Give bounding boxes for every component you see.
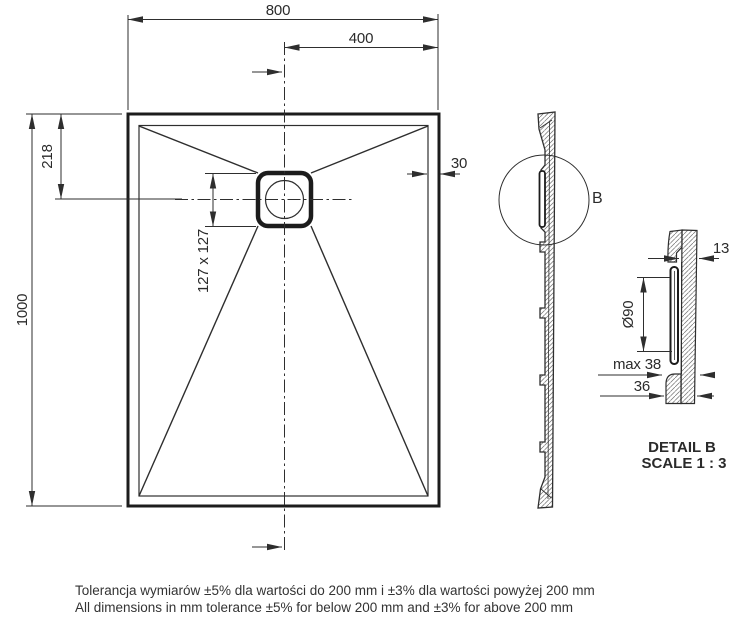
side-view (499, 112, 589, 508)
tolerance-notes: Tolerancja wymiarów ±5% dla wartości do … (75, 583, 595, 615)
dim-label-218: 218 (39, 144, 56, 168)
detail-top-rim (668, 230, 682, 262)
top-view-dimensions (26, 14, 460, 547)
slope-lines (139, 126, 428, 496)
detail-scale: SCALE 1 : 3 (641, 455, 726, 472)
tolerance-note-en: All dimensions in mm tolerance ±5% for b… (75, 600, 573, 615)
centerlines (175, 42, 352, 552)
detail-title: DETAIL B (648, 439, 716, 456)
top-view (128, 42, 439, 552)
detail-right-wall (681, 230, 697, 404)
detail-b-letter: B (592, 190, 603, 207)
detail-view-dimensions (598, 259, 719, 397)
dim-label-800: 800 (266, 2, 290, 19)
dim-label-max-38: max 38 (613, 356, 661, 373)
drawing-canvas: 800 400 218 1000 127 x 127 30 B (0, 0, 750, 640)
dim-label-127x127: 127 x 127 (195, 229, 212, 293)
dim-label-400: 400 (349, 30, 373, 47)
tolerance-note-pl: Tolerancja wymiarów ±5% dla wartości do … (75, 583, 595, 598)
dim-label-diameter-90: Ø90 (620, 301, 637, 329)
dim-label-36: 36 (634, 378, 650, 395)
side-drain-plate (540, 171, 546, 227)
technical-drawing: 800 400 218 1000 127 x 127 30 B (0, 0, 750, 640)
dim-label-30: 30 (451, 155, 467, 172)
detail-view (666, 230, 697, 404)
top-view-dimension-labels: 800 400 218 1000 127 x 127 30 (14, 2, 467, 326)
dim-label-13: 13 (713, 240, 729, 257)
dim-label-1000: 1000 (14, 294, 31, 327)
detail-bottom-block (666, 374, 681, 404)
